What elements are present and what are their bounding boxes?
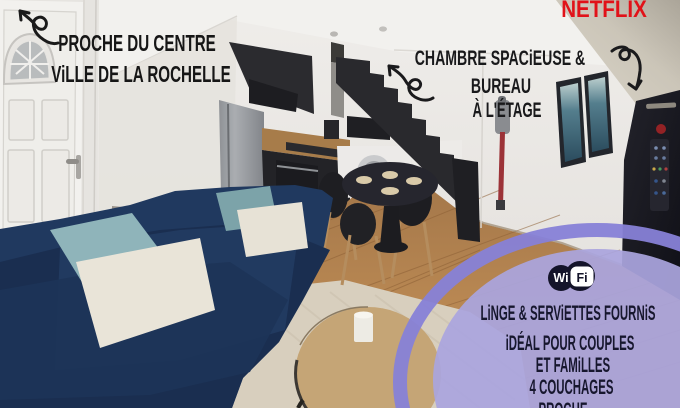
svg-text:ET FAMiLLES: ET FAMiLLES <box>536 353 610 377</box>
svg-text:ViLLE DE LA ROCHELLE: ViLLE DE LA ROCHELLE <box>51 62 230 88</box>
svg-text:NETFLIX: NETFLIX <box>561 0 647 22</box>
svg-text:4 COUCHAGES: 4 COUCHAGES <box>530 375 614 399</box>
svg-text:BUREAU: BUREAU <box>471 74 531 97</box>
svg-text:CHAMBRE SPACiEUSE &: CHAMBRE SPACiEUSE & <box>415 46 586 69</box>
svg-text:iDÉAL POUR COUPLES: iDÉAL POUR COUPLES <box>506 331 635 355</box>
svg-text:Wi: Wi <box>553 271 568 285</box>
svg-text:Fi: Fi <box>576 271 587 285</box>
svg-text:À L'ÉTAGE: À L'ÉTAGE <box>472 97 541 122</box>
svg-text:PROCHE: PROCHE <box>539 398 588 408</box>
svg-text:PROCHE DU CENTRE: PROCHE DU CENTRE <box>58 31 216 57</box>
svg-text:LiNGE & SERViETTES FOURNiS: LiNGE & SERViETTES FOURNiS <box>480 301 655 325</box>
